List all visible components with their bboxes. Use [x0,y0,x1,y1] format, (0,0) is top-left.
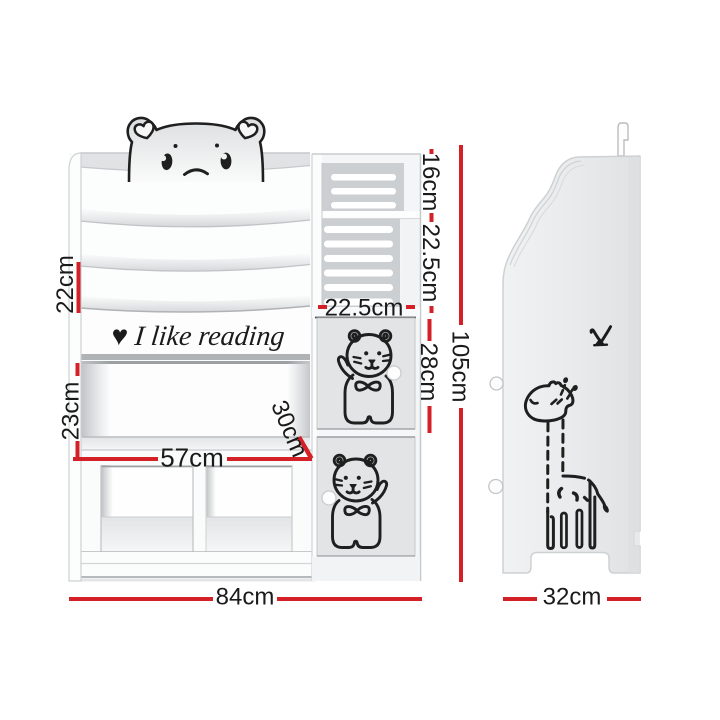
svg-text:23cm: 23cm [57,382,84,441]
svg-text:32cm: 32cm [543,583,602,610]
svg-text:57cm: 57cm [160,443,224,473]
svg-text:84cm: 84cm [216,583,275,610]
svg-text:22.5cm: 22.5cm [417,224,444,303]
svg-text:22cm: 22cm [52,255,79,314]
svg-text:16cm: 16cm [417,153,444,212]
svg-text:105cm: 105cm [447,330,474,402]
svg-text:♥ I like reading: ♥ I like reading [110,321,287,352]
svg-text:28cm: 28cm [415,343,442,402]
svg-text:22.5cm: 22.5cm [325,294,404,321]
